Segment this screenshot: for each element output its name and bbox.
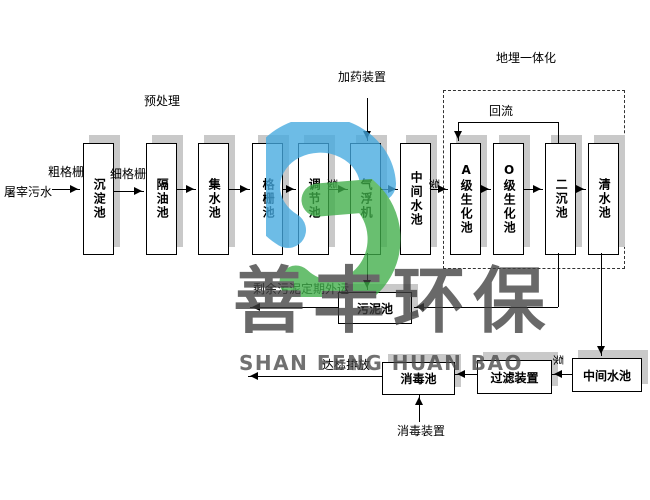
tank-label: A级生化池 [459, 163, 472, 235]
tank-clear-water: 清水池 [588, 143, 619, 255]
arrow-dosing-to-flotation [367, 98, 368, 141]
tank-air-flotation: 气浮机 [350, 143, 381, 255]
tank-label: 隔油池 [155, 178, 168, 220]
connector-reflux-up [558, 122, 559, 143]
tank-label: 中间水池 [583, 367, 631, 384]
tank-label: 过滤装置 [490, 369, 538, 386]
arrow-screen-to-regulating [282, 189, 296, 190]
tank-o-biochemical: O级生化池 [493, 143, 524, 255]
arrow-clear-to-intermediate-2 [601, 253, 602, 356]
arrow-intermediate-to-a-tank [431, 189, 448, 190]
tank-disinfection: 消毒池 [382, 362, 455, 395]
tank-label: O级生化池 [502, 163, 515, 235]
tank-label: 中间水池 [409, 171, 422, 227]
flow-diagram: 屠宰污水 粗格栅 细格栅 预处理 加药装置 地埋一体化 回流 剩余污泥定期外运 … [0, 0, 650, 500]
tank-regulating: 调节池 [298, 143, 329, 255]
reflux-label: 回流 [489, 102, 513, 119]
arrow-flotation-to-sludge [367, 253, 368, 290]
discharge-label: 达标排放 [322, 356, 370, 373]
connector-secondary-down [558, 253, 559, 307]
arrow-oil-to-collecting [177, 189, 196, 190]
arrow-secondary-to-clear [575, 189, 586, 190]
tank-a-biochemical: A级生化池 [450, 143, 481, 255]
tank-collecting: 集水池 [198, 143, 229, 255]
tank-label: 气浮机 [359, 178, 372, 220]
arrow-discharge [248, 376, 382, 377]
tank-sedimentation: 沉淀池 [83, 143, 114, 255]
tank-label: 调节池 [307, 178, 320, 220]
arrow-filter-to-disinfection [455, 374, 477, 375]
arrow-collecting-to-screen [229, 189, 250, 190]
arrow-influent-to-sedimentation [52, 189, 80, 190]
arrow-sludge-out [250, 307, 338, 308]
arrow-disinfection-device [419, 395, 420, 422]
buried-integration-label: 地埋一体化 [496, 49, 556, 66]
arrow-reflux-down [458, 122, 459, 141]
tank-label: 污泥池 [357, 300, 393, 317]
pretreatment-label: 预处理 [144, 92, 180, 109]
tank-intermediate: 中间水池 [400, 143, 431, 255]
influent-label: 屠宰污水 [4, 183, 52, 200]
pump-label-3: 泵 [551, 355, 567, 366]
arrow-o-to-secondary [524, 189, 543, 190]
tank-label: 沉淀池 [92, 178, 105, 220]
arrow-flotation-to-intermediate [381, 189, 398, 190]
tank-sludge: 污泥池 [338, 292, 412, 324]
tank-label: 二沉池 [554, 178, 567, 220]
excess-sludge-label: 剩余污泥定期外运 [253, 280, 349, 297]
arrow-regulating-to-flotation [329, 189, 348, 190]
arrow-sedimentation-to-oil [114, 191, 144, 192]
tank-screen: 格栅池 [252, 143, 283, 255]
arrow-a-to-o-tank [481, 189, 491, 190]
tank-secondary-sedimentation: 二沉池 [545, 143, 576, 255]
tank-label: 消毒池 [400, 370, 436, 387]
arrow-intermediate-2-to-filter [552, 374, 572, 375]
tank-label: 集水池 [207, 178, 220, 220]
tank-intermediate-2: 中间水池 [572, 358, 642, 392]
tank-label: 清水池 [597, 178, 610, 220]
dosing-device-label: 加药装置 [338, 68, 386, 85]
tank-label: 格栅池 [261, 178, 274, 220]
tank-oil-separation: 隔油池 [146, 143, 177, 255]
tank-filter-device: 过滤装置 [477, 360, 552, 394]
connector-reflux-across [458, 122, 558, 123]
fine-screen-label: 细格栅 [110, 165, 146, 182]
disinfection-device-label: 消毒装置 [397, 422, 445, 439]
arrow-secondary-to-sludge [414, 307, 558, 308]
coarse-screen-label: 粗格栅 [48, 163, 84, 180]
